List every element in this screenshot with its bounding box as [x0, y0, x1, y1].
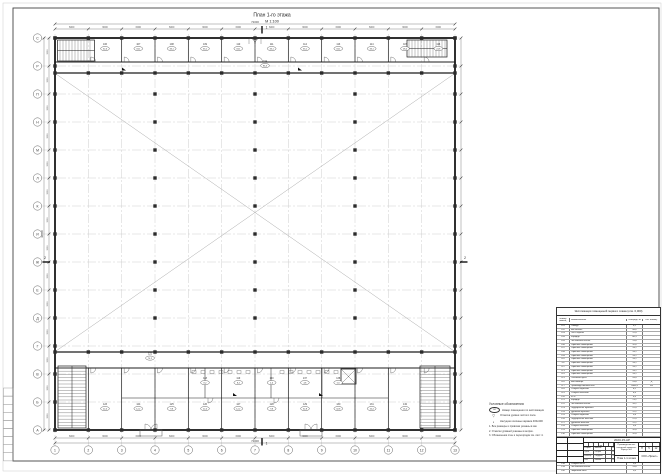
svg-text:3: 3 — [121, 448, 123, 452]
svg-text:6000: 6000 — [302, 435, 308, 438]
svg-text:Г: Г — [37, 344, 39, 348]
svg-text:3000: 3000 — [47, 385, 49, 391]
svg-text:6000: 6000 — [436, 435, 442, 438]
svg-text:3000: 3000 — [47, 329, 49, 335]
svg-text:3000: 3000 — [47, 105, 49, 111]
svg-text:138: 138 — [336, 377, 341, 380]
svg-text:137: 137 — [303, 377, 308, 380]
svg-text:6000: 6000 — [402, 26, 408, 29]
sheets-label: Листов — [653, 443, 660, 446]
schedule-title: Экспликация помещений первого этажа (отм… — [557, 308, 660, 316]
svg-text:4: 4 — [154, 448, 156, 452]
title-block-attachment-cells — [557, 438, 584, 462]
svg-text:3000: 3000 — [47, 357, 49, 363]
svg-text:109: 109 — [203, 43, 208, 46]
room-tags: 10632,610733,110833,110933,111033,111133… — [101, 43, 443, 411]
svg-text:106: 106 — [103, 43, 108, 46]
svg-text:6000: 6000 — [369, 435, 375, 438]
svg-text:72000: 72000 — [251, 439, 259, 443]
svg-text:6000: 6000 — [336, 435, 342, 438]
level-triangles — [122, 68, 323, 397]
legend-item-text: Несущие колонны каркаса 400х400 — [500, 420, 543, 423]
svg-text:3000: 3000 — [47, 133, 49, 139]
svg-text:План 1-го этажа: План 1-го этажа — [253, 13, 291, 19]
svg-text:9: 9 — [321, 448, 323, 452]
svg-text:110: 110 — [236, 43, 240, 46]
elevator-shaft — [341, 369, 356, 384]
schedule-col-number: Номер помещ. — [557, 318, 570, 322]
signature-block: Изм.Кол.учЛист№ док.Подп.Дата Разраб.Ива… — [584, 443, 615, 462]
svg-text:119: 119 — [236, 377, 240, 380]
svg-text:6000: 6000 — [302, 26, 308, 29]
svg-text:6000: 6000 — [102, 435, 108, 438]
svg-text:112: 112 — [303, 43, 307, 46]
svg-text:6000: 6000 — [336, 26, 342, 29]
stage-label: Стадия — [639, 443, 646, 446]
svg-text:116: 116 — [436, 43, 440, 46]
svg-text:6000: 6000 — [236, 26, 242, 29]
svg-text:107: 107 — [136, 43, 141, 46]
svg-text:8: 8 — [287, 448, 289, 452]
svg-text:3000: 3000 — [47, 49, 49, 55]
svg-text:3000: 3000 — [47, 413, 49, 419]
schedule-header: Номер помещ. Наименование Площадь, м² Ка… — [557, 316, 660, 325]
svg-text:6000: 6000 — [269, 435, 275, 438]
svg-text:72000: 72000 — [251, 20, 259, 24]
project-name: Производственно-складской комплекс. Корп… — [615, 443, 638, 455]
svg-text:12: 12 — [420, 448, 424, 452]
svg-text:6000: 6000 — [136, 435, 142, 438]
svg-text:К: К — [37, 204, 39, 208]
svg-text:7: 7 — [254, 448, 256, 452]
sheet-number: 5 — [646, 447, 653, 451]
svg-text:130: 130 — [336, 403, 341, 406]
dimension-lines: 6000600060006000600060006000600060006000… — [40, 20, 462, 444]
sanitary-fixtures — [192, 371, 338, 374]
schedule-col-area: Площадь, м² — [627, 319, 643, 321]
svg-text:3000: 3000 — [47, 245, 49, 251]
column-icon: ▪ — [489, 420, 498, 424]
svg-text:121: 121 — [148, 352, 153, 355]
svg-text:6000: 6000 — [202, 26, 208, 29]
svg-text:129: 129 — [303, 403, 308, 406]
svg-text:6000: 6000 — [269, 26, 275, 29]
svg-text:132: 132 — [403, 403, 408, 406]
svg-text:3000: 3000 — [47, 77, 49, 83]
svg-text:1: 1 — [266, 442, 268, 446]
svg-text:115: 115 — [403, 43, 407, 46]
svg-text:13: 13 — [453, 448, 457, 452]
svg-text:125: 125 — [170, 403, 175, 406]
svg-text:2: 2 — [44, 256, 46, 260]
schedule-col-category: Кат. помещ. — [643, 319, 660, 321]
svg-text:120: 120 — [270, 377, 275, 380]
sheet-label: Лист — [646, 443, 653, 446]
svg-text:10: 10 — [353, 448, 357, 452]
svg-text:6000: 6000 — [69, 26, 75, 29]
svg-text:3000: 3000 — [47, 301, 49, 307]
svg-text:3000: 3000 — [47, 161, 49, 167]
svg-text:111: 111 — [270, 43, 274, 46]
svg-text:Л: Л — [36, 176, 38, 180]
door-swings — [91, 38, 429, 436]
organization-name: ООО «Проект» — [639, 452, 660, 462]
svg-text:6000: 6000 — [402, 435, 408, 438]
svg-text:3000: 3000 — [47, 189, 49, 195]
svg-text:126: 126 — [203, 403, 208, 406]
svg-text:6000: 6000 — [136, 26, 142, 29]
svg-text:6000: 6000 — [69, 435, 75, 438]
schedule-col-name: Наименование — [570, 319, 627, 321]
svg-text:113: 113 — [336, 43, 340, 46]
svg-text:118: 118 — [203, 377, 207, 380]
grid-axes — [42, 34, 462, 446]
svg-text:123: 123 — [103, 403, 108, 406]
sheet-title-field: План 1-го этажа — [615, 456, 638, 463]
svg-text:131: 131 — [370, 403, 375, 406]
signature-row: ГИПКозлов05.23 — [584, 459, 614, 462]
stage-value: П — [639, 447, 646, 451]
svg-text:6: 6 — [221, 448, 223, 452]
svg-text:1: 1 — [266, 26, 268, 30]
title-block: 2023-15-АР Изм.Кол.учЛист№ док.Подп.Дата… — [556, 437, 661, 463]
svg-text:6000: 6000 — [169, 435, 175, 438]
svg-text:114: 114 — [370, 43, 374, 46]
sheets-total: 12 — [653, 447, 660, 451]
svg-text:6000: 6000 — [236, 435, 242, 438]
legend-item-text: Номер помещения по экспликации — [502, 409, 544, 412]
svg-text:3000: 3000 — [47, 217, 49, 223]
svg-text:127: 127 — [236, 403, 241, 406]
svg-text:124: 124 — [136, 403, 141, 406]
svg-text:128: 128 — [270, 403, 275, 406]
svg-text:1: 1 — [54, 448, 56, 452]
svg-text:6000: 6000 — [102, 26, 108, 29]
svg-text:6000: 6000 — [169, 26, 175, 29]
axis-bubbles: 12345678910111213АБВГДЕЖИКЛМНПРС — [33, 34, 459, 454]
svg-text:6000: 6000 — [202, 435, 208, 438]
drawing-sheet: 6000600060006000600060006000600060006000… — [0, 0, 664, 474]
svg-text:5: 5 — [187, 448, 189, 452]
svg-text:М: М — [36, 148, 39, 152]
level-mark-icon: ▽ — [489, 414, 498, 418]
svg-text:6000: 6000 — [436, 26, 442, 29]
svg-text:2: 2 — [87, 448, 89, 452]
svg-text:3000: 3000 — [47, 273, 49, 279]
svg-text:2: 2 — [464, 256, 466, 260]
svg-text:104: 104 — [263, 60, 268, 63]
svg-text:11: 11 — [387, 448, 391, 452]
svg-text:108: 108 — [170, 43, 175, 46]
svg-text:6000: 6000 — [369, 26, 375, 29]
svg-text:М 1:100: М 1:100 — [265, 19, 279, 23]
legend-item-text: Отметка уровня чистого пола — [500, 414, 535, 417]
sheet-title: План 1-го этажаМ 1:100 — [253, 13, 291, 24]
